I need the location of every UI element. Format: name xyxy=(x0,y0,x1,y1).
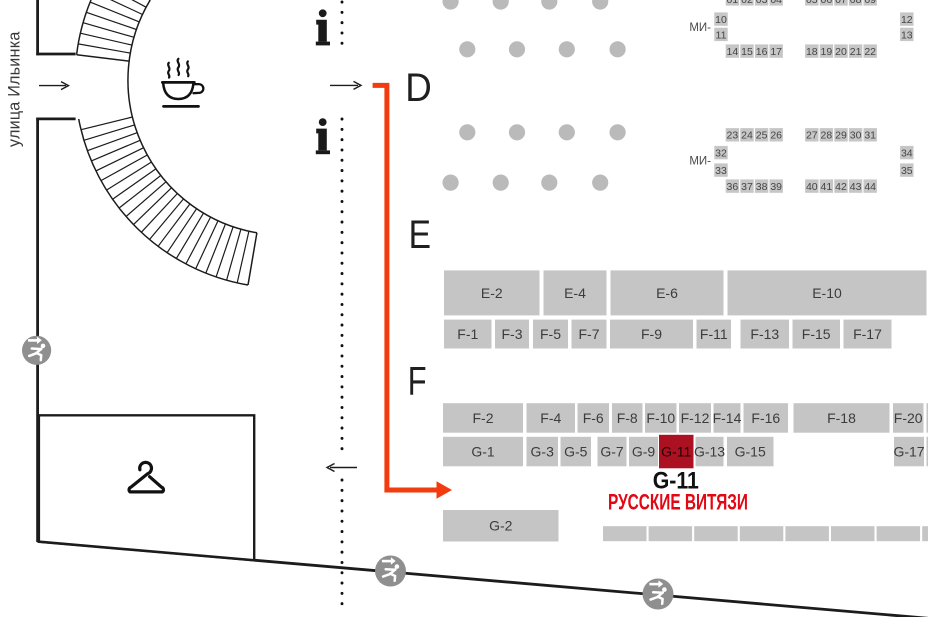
svg-text:23: 23 xyxy=(727,130,739,142)
svg-text:E-2: E-2 xyxy=(481,285,503,301)
svg-text:37: 37 xyxy=(741,181,753,193)
svg-text:G-11: G-11 xyxy=(661,443,691,459)
svg-text:G-17: G-17 xyxy=(893,443,924,459)
svg-text:F-4: F-4 xyxy=(540,410,561,426)
svg-text:F-20: F-20 xyxy=(894,410,923,426)
svg-text:G-2: G-2 xyxy=(489,518,513,534)
svg-text:32: 32 xyxy=(715,148,727,160)
svg-text:13: 13 xyxy=(901,29,913,41)
svg-text:38: 38 xyxy=(756,181,768,193)
svg-text:G-9: G-9 xyxy=(632,443,656,459)
svg-text:F-5: F-5 xyxy=(540,326,561,342)
svg-text:F-6: F-6 xyxy=(583,410,604,426)
svg-text:F-17: F-17 xyxy=(853,326,882,342)
svg-text:04: 04 xyxy=(770,0,782,6)
svg-text:40: 40 xyxy=(806,181,818,193)
svg-text:F-14: F-14 xyxy=(713,410,742,426)
svg-text:17: 17 xyxy=(770,46,782,58)
svg-text:G-1: G-1 xyxy=(471,443,495,459)
svg-text:33: 33 xyxy=(715,165,727,177)
svg-text:12: 12 xyxy=(901,14,913,26)
svg-text:10: 10 xyxy=(715,14,727,26)
svg-text:08: 08 xyxy=(850,0,862,6)
svg-text:20: 20 xyxy=(835,46,847,58)
svg-text:F-11: F-11 xyxy=(700,326,728,342)
svg-text:F-1: F-1 xyxy=(457,326,478,342)
svg-text:E-10: E-10 xyxy=(812,285,842,301)
svg-text:G-3: G-3 xyxy=(531,443,555,459)
svg-text:F-15: F-15 xyxy=(802,326,831,342)
svg-text:F-2: F-2 xyxy=(473,410,494,426)
svg-text:25: 25 xyxy=(756,130,768,142)
svg-text:14: 14 xyxy=(727,46,739,58)
svg-text:30: 30 xyxy=(850,130,862,142)
svg-text:01: 01 xyxy=(727,0,739,6)
svg-text:F-10: F-10 xyxy=(646,410,675,426)
svg-text:F: F xyxy=(408,359,427,404)
svg-text:F-12: F-12 xyxy=(681,410,710,426)
svg-text:E-6: E-6 xyxy=(656,285,678,301)
svg-text:F-16: F-16 xyxy=(751,410,780,426)
svg-text:02: 02 xyxy=(741,0,753,6)
svg-text:44: 44 xyxy=(864,181,876,193)
svg-text:18: 18 xyxy=(806,46,818,58)
svg-text:22: 22 xyxy=(864,46,876,58)
svg-text:07: 07 xyxy=(835,0,847,6)
svg-text:34: 34 xyxy=(901,148,913,160)
svg-text:28: 28 xyxy=(821,130,833,142)
svg-text:F-13: F-13 xyxy=(750,326,779,342)
svg-text:G-7: G-7 xyxy=(600,443,624,459)
svg-text:06: 06 xyxy=(821,0,833,6)
svg-text:11: 11 xyxy=(716,29,727,41)
svg-text:G-13: G-13 xyxy=(694,443,725,459)
svg-text:G-15: G-15 xyxy=(735,443,766,459)
svg-text:29: 29 xyxy=(835,130,847,142)
svg-text:26: 26 xyxy=(770,130,782,142)
svg-text:МИ-: МИ- xyxy=(689,156,711,168)
svg-text:36: 36 xyxy=(727,181,739,193)
svg-text:E: E xyxy=(409,213,431,257)
svg-text:E-4: E-4 xyxy=(564,285,586,301)
svg-text:31: 31 xyxy=(864,130,876,142)
svg-text:РУССКИЕ ВИТЯЗИ: РУССКИЕ ВИТЯЗИ xyxy=(608,491,748,515)
svg-text:41: 41 xyxy=(821,181,833,193)
svg-text:21: 21 xyxy=(850,46,862,58)
svg-text:F-8: F-8 xyxy=(617,410,638,426)
svg-text:19: 19 xyxy=(821,46,833,58)
svg-text:43: 43 xyxy=(850,181,862,193)
svg-text:улица Ильинка: улица Ильинка xyxy=(6,31,24,147)
svg-text:03: 03 xyxy=(756,0,768,6)
svg-text:27: 27 xyxy=(806,130,818,142)
svg-text:35: 35 xyxy=(901,165,913,177)
svg-text:39: 39 xyxy=(770,181,782,193)
svg-text:24: 24 xyxy=(741,130,753,142)
svg-text:G-5: G-5 xyxy=(564,443,588,459)
svg-text:15: 15 xyxy=(741,46,753,58)
svg-text:F-3: F-3 xyxy=(502,326,523,342)
svg-text:МИ-: МИ- xyxy=(689,22,711,34)
svg-text:42: 42 xyxy=(835,181,847,193)
svg-text:D: D xyxy=(405,66,432,111)
svg-text:F-9: F-9 xyxy=(641,326,662,342)
svg-text:16: 16 xyxy=(756,46,768,58)
svg-text:05: 05 xyxy=(806,0,818,6)
svg-text:09: 09 xyxy=(864,0,876,6)
svg-text:F-7: F-7 xyxy=(579,326,600,342)
svg-text:F-18: F-18 xyxy=(827,410,856,426)
